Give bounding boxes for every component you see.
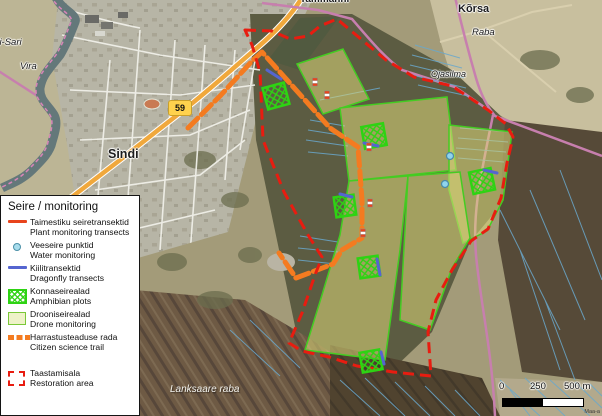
- legend-label-en: Drone monitoring: [30, 319, 96, 329]
- legend-label-et: Taastamisala: [30, 368, 94, 378]
- drone-area-symbol: [8, 312, 26, 325]
- place-label-tammanni: Tammänni: [300, 0, 349, 5]
- legend-label-en: Restoration area: [30, 378, 94, 388]
- scale-tick-0: 0: [499, 381, 504, 392]
- legend-label-en: Dragonfly transects: [30, 273, 104, 283]
- place-label-raba: Raba: [472, 27, 495, 38]
- plant-transect-line-symbol: [8, 220, 27, 223]
- legend-item-drone-monitoring: Drooniseirealad Drone monitoring: [8, 309, 135, 330]
- place-label-korsa: Kõrsa: [458, 3, 489, 15]
- legend-title: Seire / monitoring: [8, 201, 135, 213]
- amphibian-plot-symbol: [8, 289, 27, 304]
- legend-label-en: Plant monitoring transects: [30, 227, 129, 237]
- monitoring-map-figure: Tammänni Kõrsa Raba Ojasilma Vira rdi-Sa…: [0, 0, 602, 416]
- scale-bar-black-segment: [503, 399, 543, 406]
- place-label-vira: Vira: [20, 61, 37, 72]
- scale-bar: [502, 398, 584, 407]
- legend-label-et: Harrastusteaduse rada: [30, 332, 117, 342]
- legend-label-et: Veeseire punktid: [30, 240, 95, 250]
- place-label-ojasilma: Ojasilma: [431, 69, 466, 79]
- legend-panel: Seire / monitoring Taimestiku seiretrans…: [0, 195, 140, 416]
- water-point-symbol: [13, 243, 21, 251]
- scale-tick-250: 250: [530, 381, 546, 392]
- legend-item-dragonfly-transects: Kiilitransektid Dragonfly transects: [8, 263, 135, 284]
- legend-item-amphibian-plots: Konnaseirealad Amphibian plots: [8, 286, 135, 307]
- legend-label-en: Water monitoring: [30, 250, 95, 260]
- legend-item-restoration-area: Taastamisala Restoration area: [8, 368, 135, 389]
- legend-label-en: Amphibian plots: [30, 296, 91, 306]
- legend-label-et: Kiilitransektid: [30, 263, 104, 273]
- road-shield-number: 59: [175, 103, 185, 113]
- place-label-sari: rdi-Sari: [0, 37, 22, 48]
- legend-label-et: Konnaseirealad: [30, 286, 91, 296]
- legend-item-water-monitoring: Veeseire punktid Water monitoring: [8, 240, 135, 261]
- restoration-area-symbol: [8, 371, 25, 386]
- legend-label-et: Taimestiku seiretransektid: [30, 217, 129, 227]
- legend-label-en: Citizen science trail: [30, 342, 117, 352]
- scale-tick-500m: 500 m: [564, 381, 590, 392]
- legend-item-citizen-trail: Harrastusteaduse rada Citizen science tr…: [8, 332, 135, 353]
- legend-label-et: Drooniseirealad: [30, 309, 96, 319]
- map-attribution: Maa-a: [584, 409, 600, 415]
- road-shield-59: 59: [168, 100, 192, 116]
- place-label-sindi: Sindi: [108, 147, 139, 161]
- citizen-trail-symbol: [8, 335, 30, 340]
- legend-item-plant-transects: Taimestiku seiretransektid Plant monitor…: [8, 217, 135, 238]
- dragonfly-transect-line-symbol: [8, 266, 27, 269]
- place-label-lanksaare-raba: Lanksaare raba: [170, 384, 240, 395]
- scale-bar-white-segment: [543, 399, 583, 406]
